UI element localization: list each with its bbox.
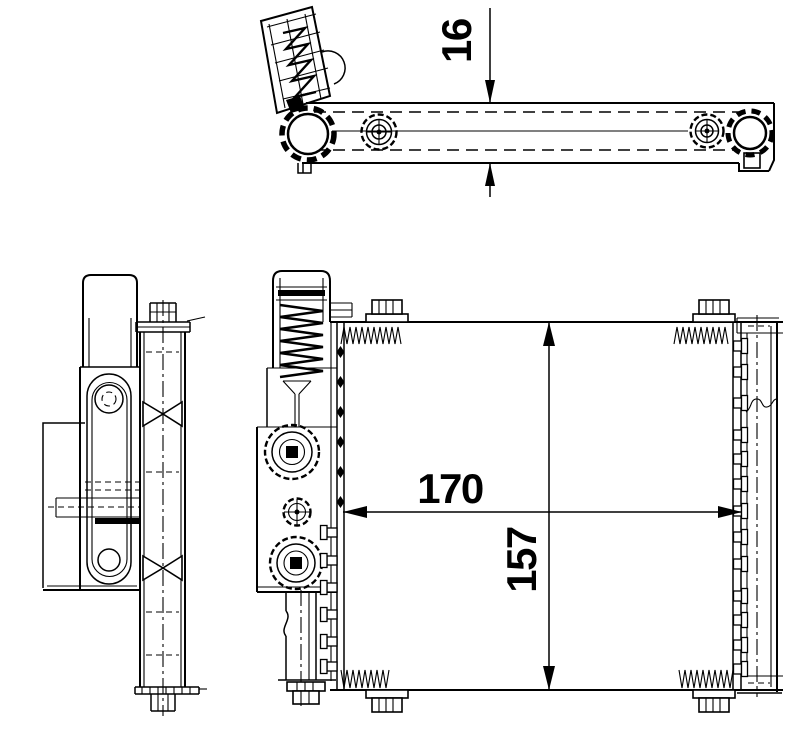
- pipe-flange-right: [728, 111, 772, 168]
- front-view: [257, 271, 783, 712]
- top-view: [261, 7, 774, 173]
- cooler-profile-bar: [298, 103, 774, 173]
- mounting-block: [43, 423, 85, 588]
- arrow-up-icon: [543, 322, 555, 346]
- mounting-pin-bottom-left: [366, 690, 408, 712]
- arrow-up-icon: [485, 163, 495, 186]
- mounting-pin-top-left: [366, 300, 408, 322]
- fin-blocks: [341, 327, 733, 688]
- thermostat-housing-tilted: [261, 7, 345, 113]
- side-tank: [734, 315, 784, 697]
- bottom-flange: [135, 687, 199, 694]
- valve-funnel: [283, 381, 311, 427]
- side-view: [43, 275, 207, 716]
- break-line: [746, 399, 777, 412]
- spring-coil-front: [280, 305, 323, 377]
- drain-tab: [298, 163, 311, 173]
- slot-hole-top: [95, 385, 123, 413]
- slot-hole-bottom: [98, 549, 120, 571]
- screw-boss-right: [691, 115, 724, 148]
- dimension-157: 157: [498, 322, 555, 690]
- cooler-tube-side: [135, 300, 207, 716]
- dimension-157-label: 157: [498, 527, 545, 593]
- fin-block-top-right: [674, 327, 728, 344]
- hose-boss-upper: [265, 425, 319, 479]
- mounting-pin-top-right: [693, 300, 735, 322]
- bleed-screw-boss: [284, 499, 311, 526]
- mounting-pin-bottom-right: [693, 690, 735, 712]
- fin-block-bottom-right: [679, 670, 733, 688]
- bracket-tab-top: [187, 317, 205, 321]
- screw-boss-left: [362, 115, 397, 150]
- thermostat-housing-side: [43, 275, 140, 590]
- fin-block-top-left: [341, 327, 401, 344]
- dimension-170: 170: [343, 465, 742, 518]
- engineering-drawing-canvas: 16: [0, 0, 800, 744]
- hose-boss-lower: [270, 537, 322, 589]
- pipe-flange-left: [282, 108, 334, 160]
- dimension-16-label: 16: [433, 19, 480, 63]
- arrow-left-icon: [343, 506, 367, 518]
- left-plate-plugs: [321, 526, 338, 674]
- cooler-core: [321, 322, 784, 690]
- outlet-foot: [278, 680, 336, 704]
- break-line: [284, 611, 288, 636]
- fin-block-bottom-left: [341, 670, 389, 688]
- arrow-down-icon: [485, 80, 495, 103]
- inlet-fitting: [331, 303, 352, 317]
- dimension-170-label: 170: [417, 465, 483, 512]
- arrow-down-icon: [543, 666, 555, 690]
- housing-bulge: [322, 51, 345, 84]
- slot-inner: [92, 383, 127, 577]
